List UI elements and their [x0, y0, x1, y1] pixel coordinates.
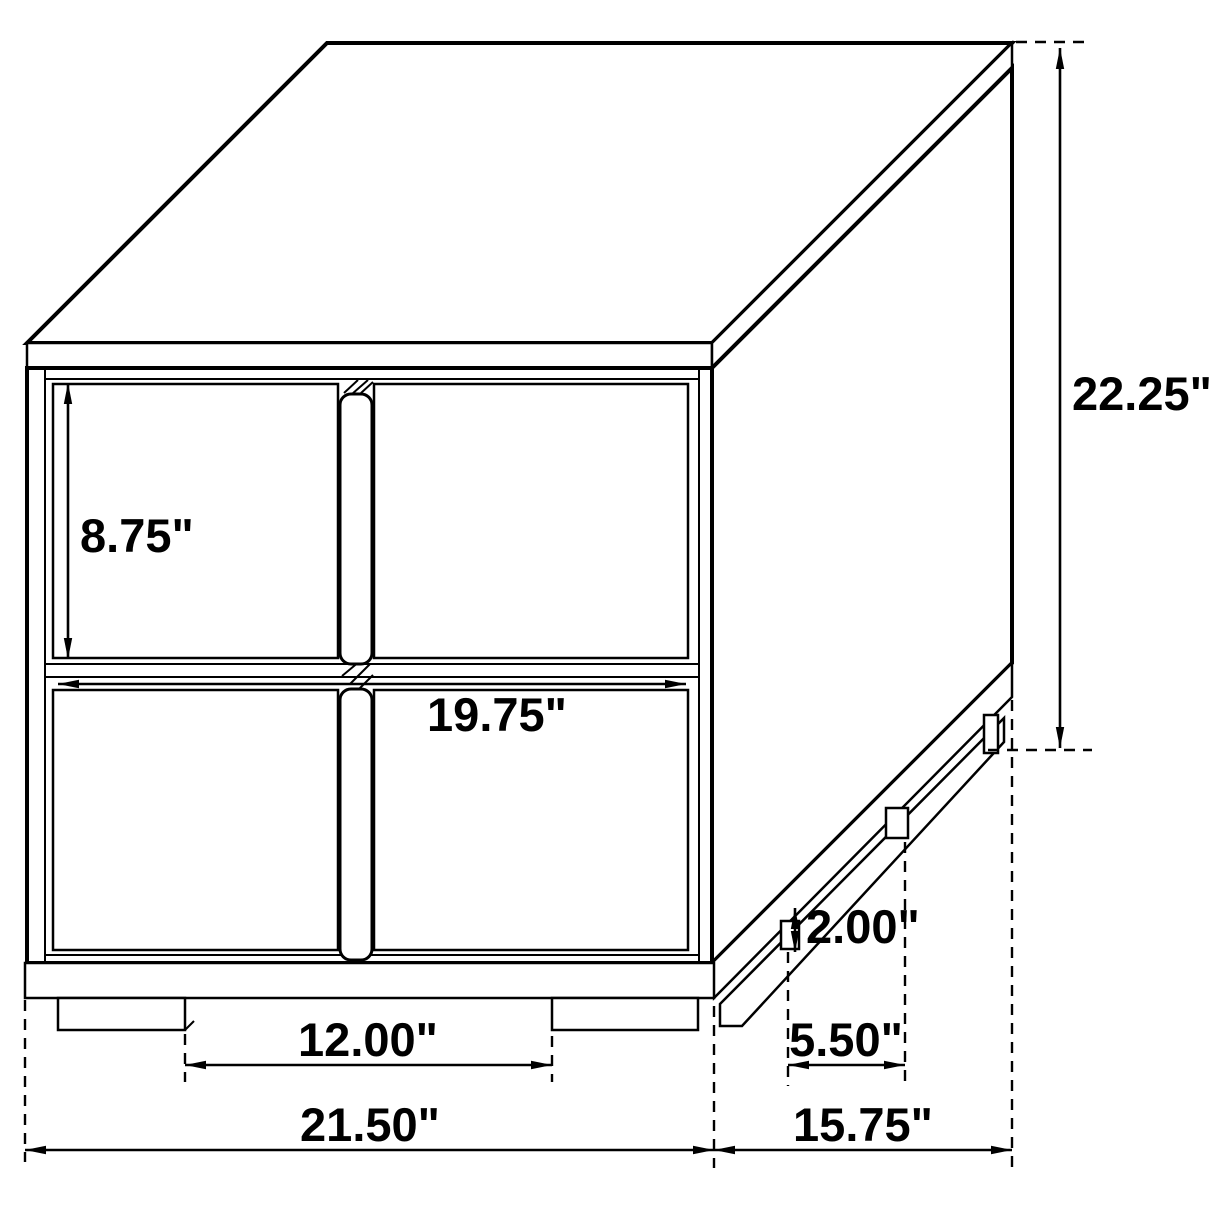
label-base-height: 2.00": [806, 900, 920, 953]
front-foot-left-edge: [185, 1021, 194, 1030]
side-foot-back: [984, 715, 998, 753]
label-drawer-face-width: 19.75": [427, 688, 567, 741]
drawer-handle-lower: [340, 689, 372, 960]
label-drawer-face-height: 8.75": [80, 509, 194, 562]
dimension-diagram: 8.75" 19.75" 22.25" 12.00" 21.50" 2.00" …: [0, 0, 1214, 1214]
label-overall-height: 22.25": [1072, 367, 1212, 420]
drawer-face-lower-left: [53, 690, 338, 950]
front-foot-left: [58, 998, 185, 1030]
nightstand-drawing: 8.75" 19.75" 22.25" 12.00" 21.50" 2.00" …: [0, 0, 1214, 1214]
label-side-feet-spacing: 5.50": [789, 1013, 903, 1066]
label-front-feet-spacing: 12.00": [298, 1013, 438, 1066]
front-foot-right: [552, 998, 698, 1030]
base-platform: [25, 963, 714, 998]
top-edge-front: [27, 343, 712, 368]
label-overall-depth: 15.75": [793, 1098, 933, 1151]
drawer-handle-upper: [340, 394, 372, 664]
side-foot-middle: [886, 808, 908, 838]
label-overall-width: 21.50": [300, 1098, 440, 1151]
drawer-face-upper-right: [374, 384, 688, 658]
